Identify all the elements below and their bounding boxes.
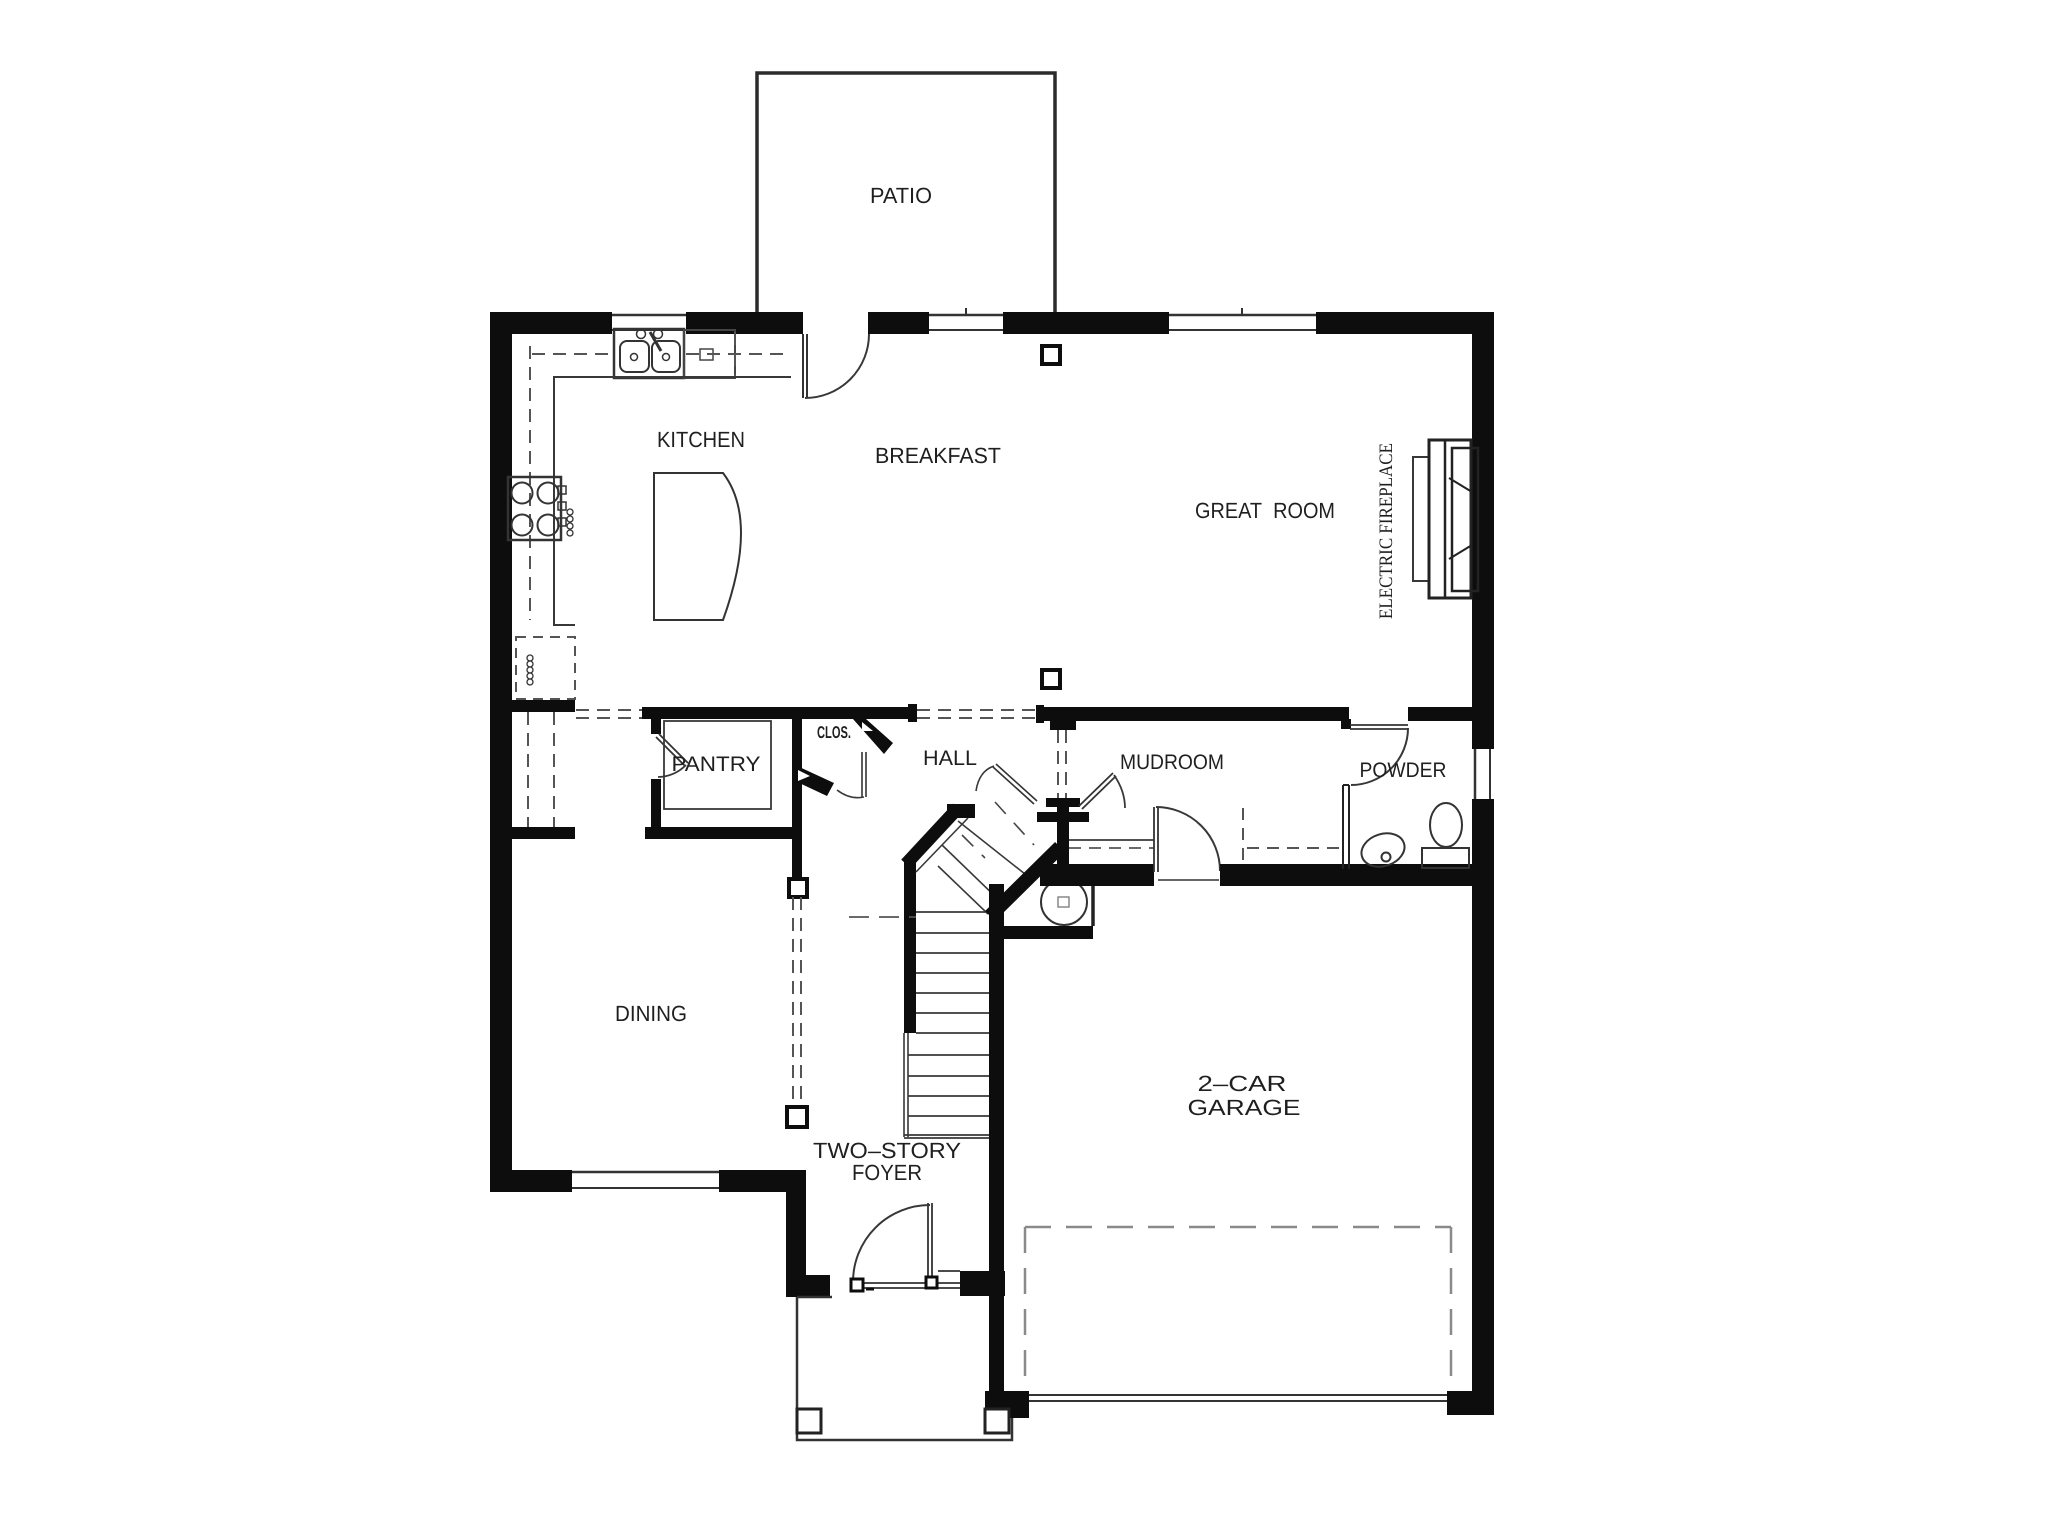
svg-text:MUDROOM: MUDROOM (1120, 751, 1224, 774)
svg-text:BREAKFAST: BREAKFAST (875, 443, 1001, 468)
svg-text:PATIO: PATIO (870, 183, 932, 208)
svg-text:CLOS.: CLOS. (817, 723, 851, 742)
svg-text:2–CAR: 2–CAR (1198, 1071, 1287, 1096)
svg-text:ELECTRIC FIREPLACE: ELECTRIC FIREPLACE (1376, 443, 1397, 619)
svg-text:DINING: DINING (615, 1001, 687, 1026)
svg-text:GARAGE: GARAGE (1188, 1095, 1301, 1120)
svg-text:FOYER: FOYER (852, 1160, 922, 1185)
svg-text:POWDER: POWDER (1360, 759, 1447, 782)
svg-text:HALL: HALL (923, 747, 977, 770)
svg-text:KITCHEN: KITCHEN (657, 427, 745, 452)
svg-text:PANTRY: PANTRY (672, 753, 761, 776)
svg-text:GREAT ROOM: GREAT ROOM (1195, 498, 1335, 523)
